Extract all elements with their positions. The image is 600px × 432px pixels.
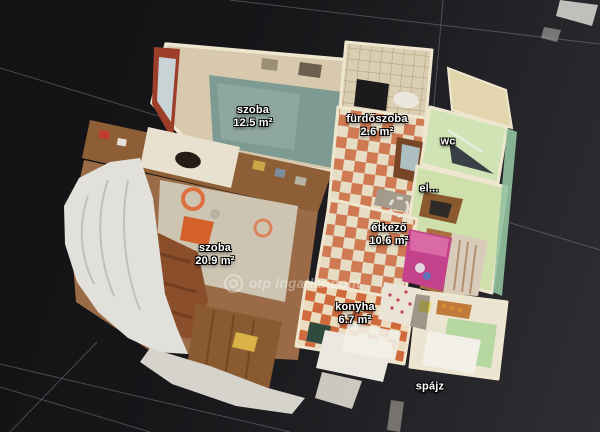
room-kitchen — [296, 282, 421, 382]
room-pantry — [410, 291, 507, 379]
floorplan-3d-model — [0, 0, 600, 432]
dollhouse-viewport[interactable]: szoba 12.5 m² fürdőszoba 2.6 m² wc el...… — [0, 0, 600, 432]
scan-fragments — [541, 0, 598, 42]
